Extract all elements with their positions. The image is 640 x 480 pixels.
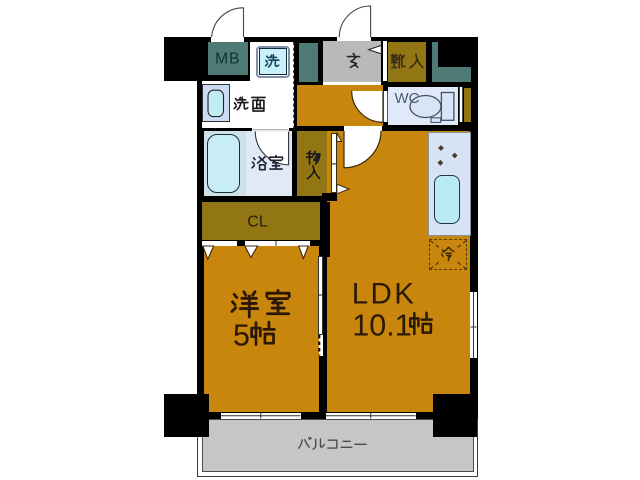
svg-text:10.1: 10.1 xyxy=(352,309,411,343)
svg-text:CL: CL xyxy=(247,214,268,231)
svg-text:5: 5 xyxy=(233,318,250,352)
svg-text:MB: MB xyxy=(215,51,240,68)
svg-text:LDK: LDK xyxy=(352,278,417,311)
svg-text:WC: WC xyxy=(395,90,420,107)
